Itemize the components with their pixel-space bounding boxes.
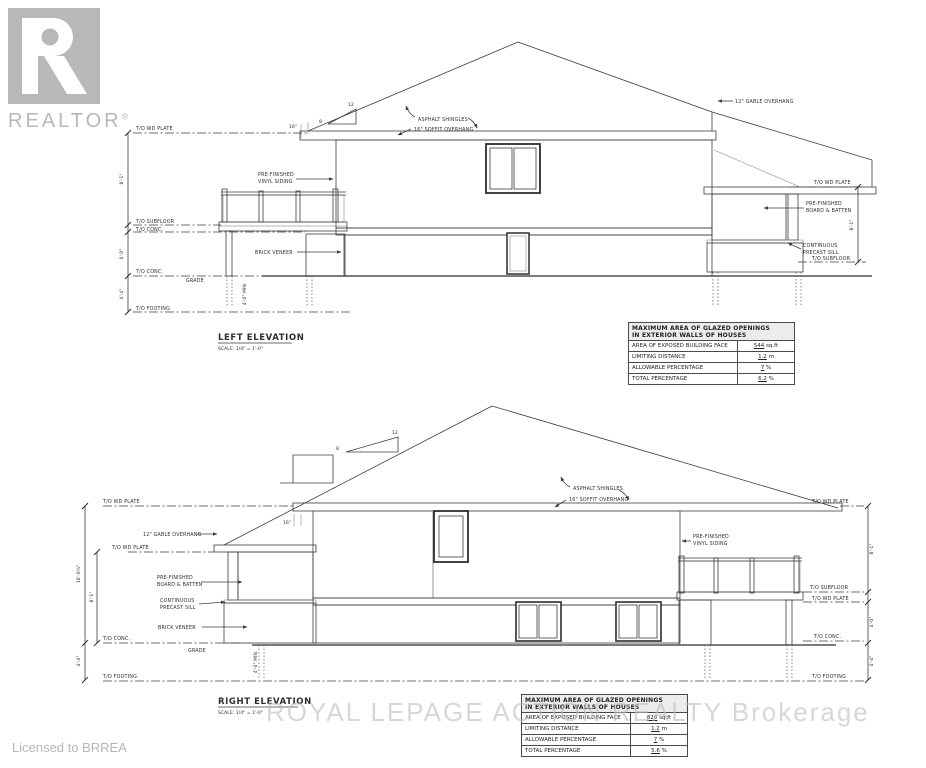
label-asphalt-shingles: ASPHALT SHINGLES: [573, 486, 623, 492]
slope-run: 12: [348, 102, 354, 108]
label-prefinished: PRE-FINISHED: [157, 575, 193, 581]
left-elevation-drawing: 8'-1" 6'-0" 4'-4" 8'-1" 4'-0" MIN. T/O W…: [119, 42, 876, 352]
label-to-subfloor: T/O SUBFLOOR: [135, 219, 175, 225]
label-to-wd-plate: T/O WD PLATE: [111, 545, 149, 551]
label-prefinished: PRE-FINISHED: [693, 534, 729, 540]
label-vinyl-siding: VINYL SIDING: [258, 179, 293, 185]
dim-storey: 8'-1": [849, 220, 855, 231]
label-to-wd-plate: T/O WD PLATE: [813, 180, 851, 186]
left-elevation-title: LEFT ELEVATION: [218, 333, 304, 343]
roof: [300, 42, 876, 194]
dim-storey: 8'-1": [119, 174, 125, 185]
dim-frost-min: 4'-0" MIN.: [242, 283, 248, 306]
gable-overhang-outline: [280, 455, 333, 483]
label-continuous: CONTINUOUS: [803, 243, 838, 249]
footing-dotted-lines: [259, 645, 792, 678]
roof-slope-marker: 12 8 16": [289, 102, 356, 138]
table-row: TOTAL PERCENTAGE5.6 %: [522, 745, 687, 756]
dim-basement: 6'-0": [119, 249, 125, 260]
label-soffit-overhang: 16" SOFFIT OVERHANG: [569, 497, 628, 503]
label-to-conc: T/O CONC.: [102, 636, 130, 642]
lower-double-window-2: [616, 602, 661, 641]
label-continuous: CONTINUOUS: [160, 598, 195, 604]
roof: [214, 406, 842, 552]
table-row: ALLOWABLE PERCENTAGE7 %: [629, 362, 794, 373]
right-elevation-drawing: 16'-0¾" 4'-4" 8'-1" 8'-1" 4'-0" 4'-4" 4'…: [76, 406, 875, 716]
label-to-subfloor: T/O SUBFLOOR: [809, 585, 849, 591]
label-to-wd-plate: T/O WD PLATE: [102, 499, 140, 505]
realtor-r-icon: [8, 8, 100, 104]
slope-rise: 8: [336, 446, 339, 452]
glazed-openings-table-left-elevation: MAXIMUM AREA OF GLAZED OPENINGS IN EXTER…: [628, 322, 795, 385]
annotation-labels: T/O WD PLATE 12" GABLE OVERHANG T/O WD P…: [102, 477, 849, 680]
label-brick-veneer: BRICK VENEER: [255, 250, 293, 256]
upper-double-window: [486, 144, 540, 193]
dim-storey: 8'-1": [869, 544, 875, 555]
label-asphalt-shingles: ASPHALT SHINGLES: [418, 117, 468, 123]
lower-window: [507, 233, 529, 274]
deck: [677, 556, 803, 645]
label-to-footing: T/O FOOTING: [102, 674, 137, 680]
dim-frost-min: 4'-0" MIN.: [253, 651, 259, 674]
label-brick-veneer: BRICK VENEER: [158, 625, 196, 631]
realtor-logo: REALTOR®: [8, 8, 131, 133]
walls: [336, 140, 803, 276]
label-to-conc: T/O CONC.: [813, 634, 841, 640]
brokerage-watermark: ROYAL LEPAGE ACTION REALTY Brokerage: [266, 697, 870, 728]
table-row: ALLOWABLE PERCENTAGE7 %: [522, 734, 687, 745]
label-precast-sill: PRECAST SILL: [803, 250, 839, 256]
soffit-tick: 16": [283, 520, 291, 526]
dim-lower-storey: 4'-0": [869, 617, 875, 628]
dim-overall: 16'-0¾": [76, 565, 82, 583]
label-board-batten: BOARD & BATTEN: [157, 582, 203, 588]
label-gable-overhang: 12" GABLE OVERHANG: [143, 532, 202, 538]
label-to-wd-plate: T/O WD PLATE: [811, 596, 849, 602]
label-to-conc: T/O CONC.: [135, 227, 163, 233]
label-precast-sill: PRECAST SILL: [160, 605, 196, 611]
label-vinyl-siding: VINYL SIDING: [693, 541, 728, 547]
label-board-batten: BOARD & BATTEN: [806, 208, 852, 214]
blueprint-page: REALTOR®: [0, 0, 926, 768]
roof-slope-marker: 12 8 16": [283, 430, 398, 526]
slope-rise: 8: [319, 119, 322, 125]
dim-storey: 8'-1": [89, 592, 95, 603]
left-elevation-scale: SCALE: 1/4" = 1'-0": [218, 346, 263, 352]
label-grade: GRADE: [186, 278, 204, 284]
label-to-wd-plate: T/O WD PLATE: [811, 499, 849, 505]
table-row: AREA OF EXPOSED BUILDING FACE544 sq.ft: [629, 340, 794, 351]
label-to-footing: T/O FOOTING: [135, 306, 170, 312]
label-to-wd-plate: T/O WD PLATE: [135, 126, 173, 132]
label-grade: GRADE: [188, 648, 206, 654]
label-soffit-overhang: 16" SOFFIT OVERHANG: [414, 127, 473, 133]
lower-double-window-1: [516, 602, 561, 641]
soffit-tick: 16": [289, 124, 297, 130]
label-prefinished: PRE-FINISHED: [258, 172, 294, 178]
dim-footing-depth: 4'-4": [119, 289, 125, 300]
label-prefinished: PRE-FINISHED: [806, 201, 842, 207]
label-gable-overhang: 12" GABLE OVERHANG: [735, 99, 794, 105]
glazing-table-title: MAXIMUM AREA OF GLAZED OPENINGS IN EXTER…: [629, 323, 794, 340]
right-elevation-scale: SCALE: 1/4" = 1'-0": [218, 710, 263, 716]
label-to-footing: T/O FOOTING: [811, 674, 846, 680]
table-row: TOTAL PERCENTAGE6.2 %: [629, 373, 794, 384]
dim-footing-depth: 4'-4": [869, 656, 875, 667]
upper-single-window: [434, 511, 468, 562]
dim-footing-depth: 4'-4": [76, 656, 82, 667]
realtor-wordmark: REALTOR®: [8, 110, 131, 133]
label-to-subfloor: T/O SUBFLOOR: [811, 256, 851, 262]
slope-run: 12: [392, 430, 398, 436]
table-row: LIMITING DISTANCE1.2 m: [629, 351, 794, 362]
footing-dotted-lines: [227, 272, 801, 307]
deck: [219, 189, 347, 276]
drawing-title: LEFT ELEVATION SCALE: 1/4" = 1'-0": [218, 333, 304, 352]
label-to-conc: T/O CONC.: [135, 269, 163, 275]
license-text: Licensed to BRREA: [12, 740, 127, 755]
